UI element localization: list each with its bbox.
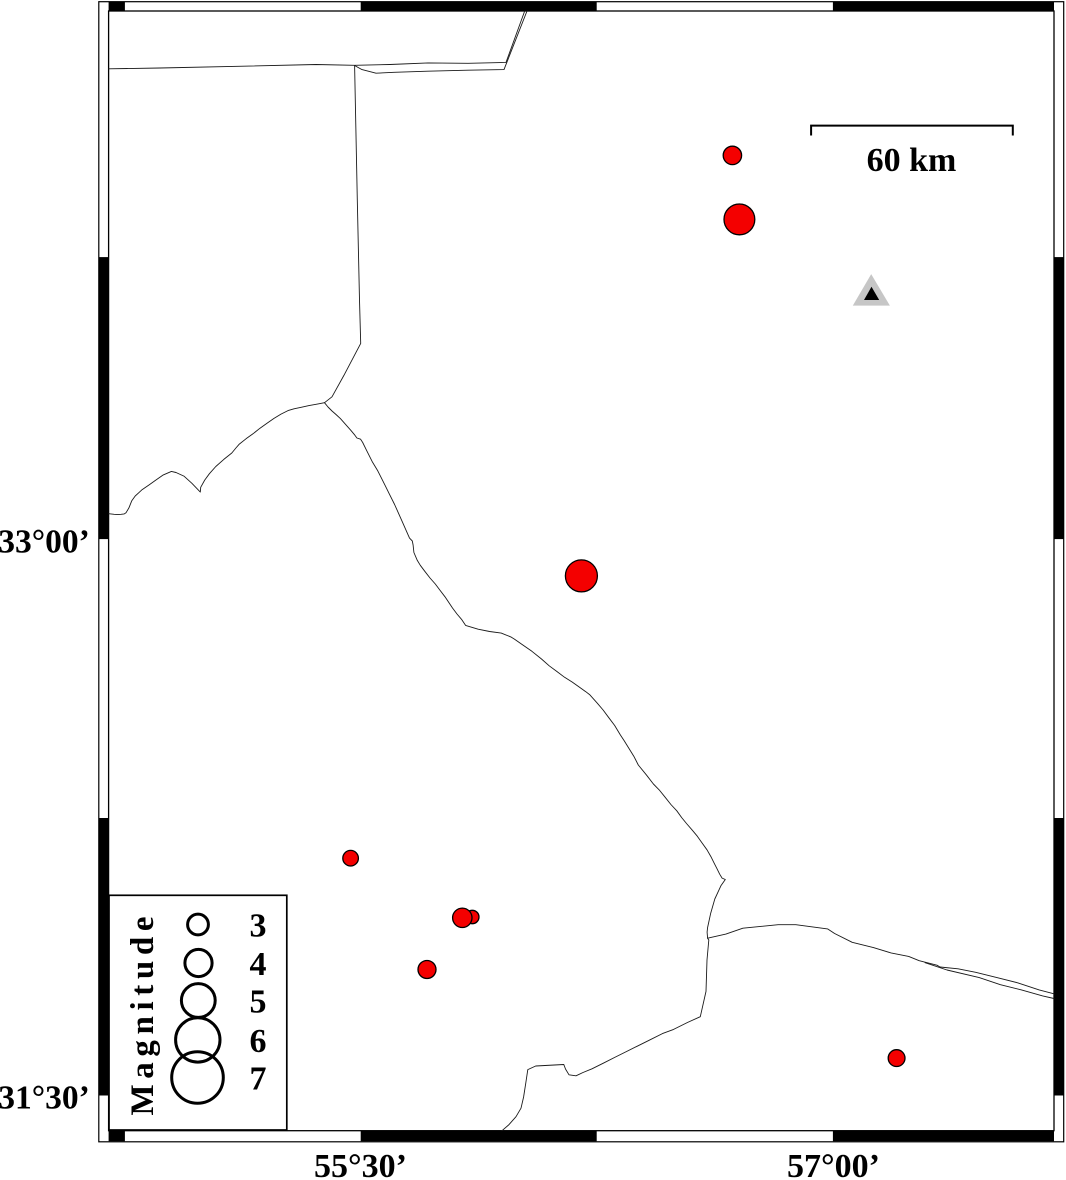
svg-text:33°00’: 33°00’ bbox=[0, 523, 90, 560]
svg-text:57°00’: 57°00’ bbox=[787, 1148, 880, 1180]
svg-text:4: 4 bbox=[250, 946, 267, 983]
svg-text:6: 6 bbox=[250, 1023, 267, 1060]
svg-text:5: 5 bbox=[250, 984, 267, 1021]
svg-text:55°30’: 55°30’ bbox=[314, 1148, 407, 1180]
svg-text:3: 3 bbox=[250, 908, 267, 945]
svg-text:31°30’: 31°30’ bbox=[0, 1079, 90, 1116]
svg-text:7: 7 bbox=[250, 1061, 267, 1098]
svg-text:60 km: 60 km bbox=[867, 142, 957, 179]
